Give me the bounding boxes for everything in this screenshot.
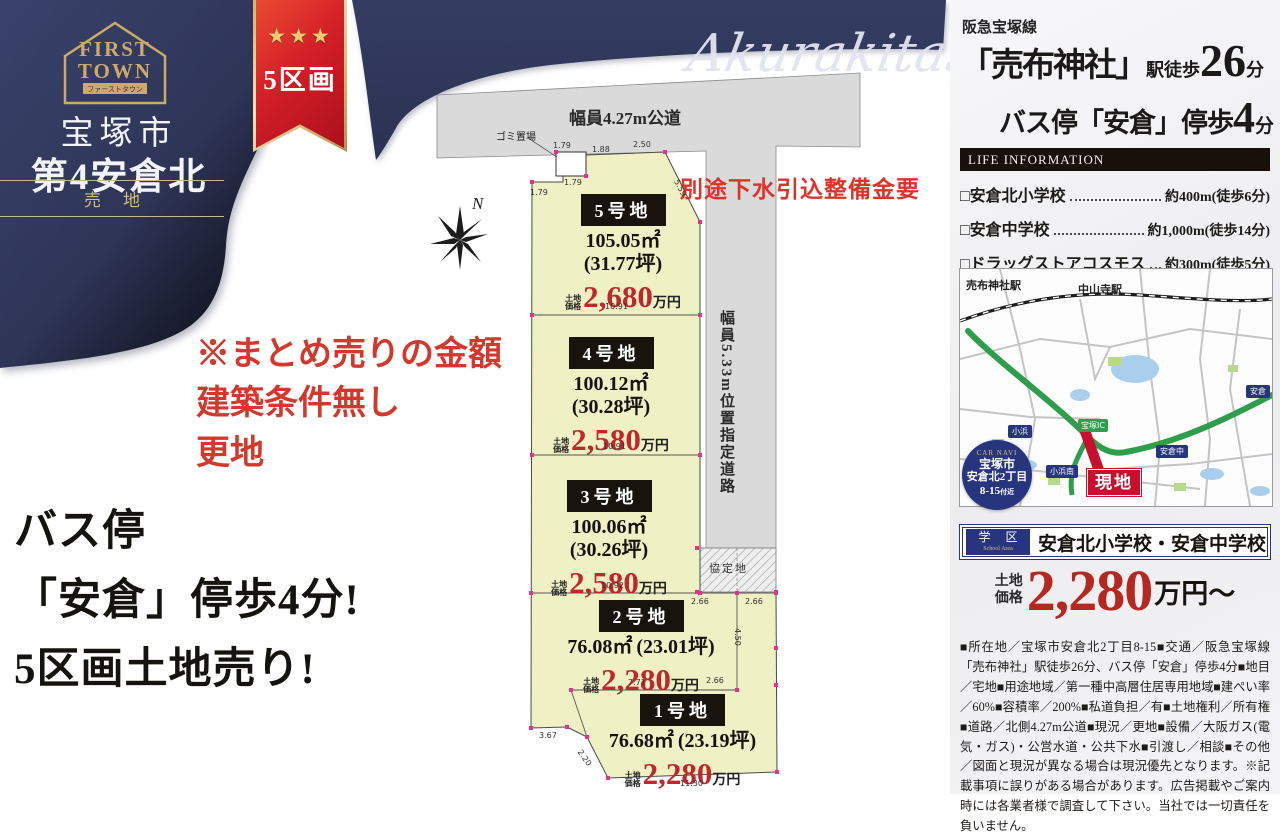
flyer-root: { "colors":{"navy":"#333b60","ribbon_red… <box>0 0 1280 794</box>
dotted-leader <box>1054 222 1144 235</box>
dimension-label: 10.91 <box>603 442 626 451</box>
dimension-label: 3.67 <box>539 731 557 740</box>
corner-dot <box>554 150 558 154</box>
life-info-row: □安倉北小学校約400m(徒歩6分) <box>960 182 1270 206</box>
navy-blob <box>0 0 310 368</box>
plot-name: 3号地 <box>567 480 652 512</box>
map-label-宝塚IC: 宝塚IC <box>1078 419 1108 432</box>
car-navi-town: 安倉北2丁目 <box>962 471 1032 484</box>
corner-dot <box>775 770 779 774</box>
map-label-小浜: 小浜 <box>1008 425 1032 438</box>
dimension-label: 4.50 <box>733 628 742 646</box>
corner-dot <box>695 590 699 594</box>
map-label-安倉: 安倉 <box>1246 385 1270 398</box>
bus-walk-min: 4 <box>1233 93 1255 142</box>
plot-area: 105.05㎡ <box>538 230 708 253</box>
station-name: 「売布神社」 <box>960 48 1146 84</box>
compass-north-label: N <box>472 194 483 214</box>
headline-line3: 5区画土地売り! <box>14 636 360 705</box>
corner-dot <box>695 546 699 550</box>
dimension-label: 1.88 <box>592 145 610 154</box>
school-district-bar: 学 区 School Area 安倉北小学校・安倉中学校 <box>959 524 1271 560</box>
dimension-label: 10.92 <box>601 581 624 590</box>
garbage-label: ゴミ置場 <box>496 128 536 143</box>
plot-area: 100.12㎡ <box>526 373 696 396</box>
corner-dot <box>698 313 702 317</box>
map-label-中山寺駅: 中山寺駅 <box>1078 281 1122 297</box>
car-navi-block: 8-15付近 <box>962 485 1032 497</box>
dimension-label: 2.66 <box>745 597 763 606</box>
plot-card-5号地: 5号地105.05㎡ (31.77坪)土地価格2,680万円 <box>538 194 708 315</box>
plot-price: 土地価格2,580万円 <box>526 422 696 458</box>
ribbon-label: 5区画 <box>253 58 347 97</box>
plot-price-prefix: 土地価格 <box>553 438 569 456</box>
dimension-label: 2.66 <box>706 676 724 685</box>
life-info-distance: 約400m(徒歩6分) <box>1165 186 1270 206</box>
main-headline: バス停 「安倉」停歩4分! 5区画土地売り! <box>14 498 360 704</box>
bus-min-unit: 分 <box>1255 116 1274 137</box>
corner-dot <box>565 725 569 729</box>
dimension-label: 2.50 <box>633 140 651 149</box>
school-district-names: 安倉北小学校・安倉中学校 <box>1038 529 1266 556</box>
corner-dot <box>698 220 702 224</box>
plot-name: 1号地 <box>640 694 725 726</box>
site-location-badge: 現地 <box>1087 469 1141 496</box>
school-badge-sub: School Area <box>966 546 1030 552</box>
agreement-label: 協定地 <box>709 560 748 576</box>
plot-tsubo: (23.01坪) <box>636 636 714 658</box>
plot-price-prefix: 土地価格 <box>551 581 567 599</box>
station-walk-label: 駅徒歩 <box>1146 60 1200 80</box>
map-label-売布神社駅: 売布神社駅 <box>966 277 1021 293</box>
headline-line1: バス停 <box>14 498 360 567</box>
plot-price-unit: 万円 <box>712 773 740 788</box>
dimension-label: 1.79 <box>553 141 571 150</box>
car-navi-badge: CAR NAVI 宝塚市 安倉北2丁目 8-15付近 <box>962 440 1032 510</box>
plot-price-prefix: 土地価格 <box>565 295 581 313</box>
dimension-label: 7.71 <box>628 678 646 687</box>
price-unit: 万円〜 <box>1154 572 1235 611</box>
corner-dot <box>529 726 533 730</box>
plot-name: 2号地 <box>599 600 684 632</box>
dimension-label: 1.79 <box>564 178 582 187</box>
land-price: 土地 価格 2,280 万円〜 <box>950 562 1280 620</box>
legal-disclaimer: ■所在地／宝塚市安倉北2丁目8-15■交通／阪急宝塚線「売布神社」駅徒歩26分、… <box>960 638 1270 837</box>
dimension-label: 10.91 <box>605 302 628 311</box>
info-panel: 阪急宝塚線 「売布神社」駅徒歩26分 バス停「安倉」停歩4分 LIFE INFO… <box>950 0 1280 794</box>
station-walk-min: 26 <box>1200 35 1246 86</box>
plot-price-unit: 万円 <box>653 296 681 311</box>
plot-name: 4号地 <box>569 337 654 369</box>
map-label-小浜南: 小浜南 <box>1046 465 1078 478</box>
side-road-label: 幅員5.33m位置指定道路 <box>716 310 737 495</box>
corner-dot <box>530 180 534 184</box>
price-amount: 2,280 <box>1027 562 1153 620</box>
corner-dot <box>774 590 778 594</box>
corner-dot <box>585 735 589 739</box>
car-navi-title: CAR NAVI <box>962 449 1032 457</box>
plot-price-prefix: 土地価格 <box>625 772 641 790</box>
life-information-header: LIFE INFORMATION <box>960 148 1270 171</box>
corner-dot <box>663 150 667 154</box>
corner-dot <box>735 591 739 595</box>
brand-city: 宝塚市 <box>0 106 238 154</box>
corner-dot <box>530 453 534 457</box>
first-town-logo: FIRST TOWN ファーストタウン <box>62 20 168 111</box>
corner-dot <box>529 591 533 595</box>
ribbon-body <box>256 0 344 148</box>
life-info-distance: 約1,000m(徒歩14分) <box>1148 220 1271 240</box>
logo-town: TOWN <box>78 59 152 83</box>
corner-dot <box>735 688 739 692</box>
dimension-label: 2.66 <box>691 597 709 606</box>
school-district-badge: 学 区 School Area <box>966 529 1030 555</box>
plot-area: 76.68㎡ <box>609 730 674 752</box>
ribbon-5-lots: ★★★ 5区画 <box>253 0 347 152</box>
corner-dot <box>606 776 610 780</box>
corner-dot <box>774 646 778 650</box>
plot-price-unit: 万円 <box>641 439 669 454</box>
site-plan: 幅員4.27m公道 幅員5.33m位置指定道路 協定地 ゴミ置場 別途下水引込整… <box>420 0 965 794</box>
plot-tsubo: (23.19坪) <box>678 730 756 752</box>
plot-name: 5号地 <box>581 194 666 226</box>
road-width-label: 幅員4.27m公道 <box>530 104 720 129</box>
corner-dot <box>569 688 573 692</box>
station-access: 「売布神社」駅徒歩26分 <box>960 34 1264 87</box>
map-label-安倉中: 安倉中 <box>1156 445 1188 458</box>
plot-tsubo: (30.28坪) <box>526 396 696 419</box>
dotted-leader <box>1070 188 1161 201</box>
bus-access: バス停「安倉」停歩4分 <box>999 92 1274 143</box>
life-info-name: □安倉中学校 <box>960 216 1050 240</box>
dimension-label: 11.30 <box>680 779 703 788</box>
plot-card-1号地: 1号地76.68㎡ (23.19坪)土地価格2,280万円 <box>570 694 795 792</box>
school-badge-label: 学 区 <box>966 529 1030 546</box>
plot-tsubo: (30.26坪) <box>524 539 694 562</box>
plot-tsubo: (31.77坪) <box>538 253 708 276</box>
price-prefix: 土地 価格 <box>995 574 1023 608</box>
plot-price-prefix: 土地価格 <box>583 678 599 696</box>
life-info-name: □安倉北小学校 <box>960 182 1066 206</box>
plot-price-unit: 万円 <box>671 679 699 694</box>
garbage-box <box>556 152 586 176</box>
ribbon-stars-icon: ★★★ <box>253 24 347 49</box>
logo-house-icon <box>65 23 165 103</box>
plot-price-amount: 2,580 <box>571 422 641 457</box>
headline-line2: 「安倉」停歩4分! <box>14 567 360 636</box>
sale-badge: 売地 <box>0 180 224 217</box>
plot-area: 76.08㎡ <box>567 636 632 658</box>
corner-dot <box>530 313 534 317</box>
plot-area: 100.06㎡ <box>524 516 694 539</box>
plot-card-4号地: 4号地100.12㎡ (30.28坪)土地価格2,580万円 <box>526 337 696 458</box>
sewer-note: 別途下水引込整備金要 <box>680 170 980 204</box>
corner-dot <box>698 453 702 457</box>
car-navi-city: 宝塚市 <box>962 457 1032 471</box>
brand-name: 第4安倉北 <box>0 146 238 200</box>
logo-subtitle: ファーストタウン <box>87 85 143 94</box>
corner-dot <box>584 174 588 178</box>
dimension-label: 1.79 <box>530 188 548 197</box>
station-min-unit: 分 <box>1246 60 1264 80</box>
life-info-row: □安倉中学校約1,000m(徒歩14分) <box>960 216 1270 240</box>
plot-price-unit: 万円 <box>639 582 667 597</box>
corner-dot <box>774 683 778 687</box>
logo-first: FIRST <box>79 37 151 61</box>
bus-stop-name: バス停「安倉」停歩 <box>999 108 1233 138</box>
compass-icon <box>430 206 488 270</box>
